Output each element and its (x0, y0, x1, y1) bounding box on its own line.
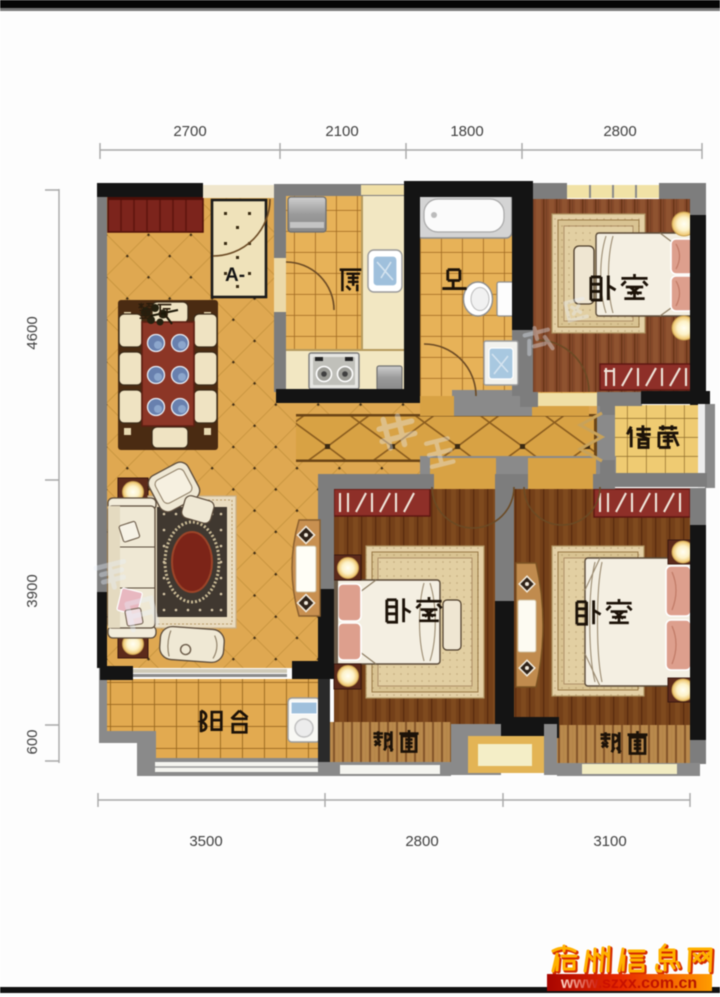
svg-text:2700: 2700 (173, 123, 206, 140)
svg-text:www.szxx.com.cn: www.szxx.com.cn (560, 975, 697, 992)
svg-text:600: 600 (24, 729, 41, 754)
svg-text:3100: 3100 (593, 833, 626, 850)
svg-text:3900: 3900 (24, 574, 41, 607)
svg-text:2800: 2800 (603, 123, 636, 140)
svg-text:3500: 3500 (189, 833, 222, 850)
svg-text:4600: 4600 (24, 316, 41, 349)
svg-text:1800: 1800 (450, 123, 483, 140)
svg-text:A-: A- (225, 265, 245, 286)
svg-text:2800: 2800 (405, 833, 438, 850)
svg-text:2100: 2100 (325, 123, 358, 140)
